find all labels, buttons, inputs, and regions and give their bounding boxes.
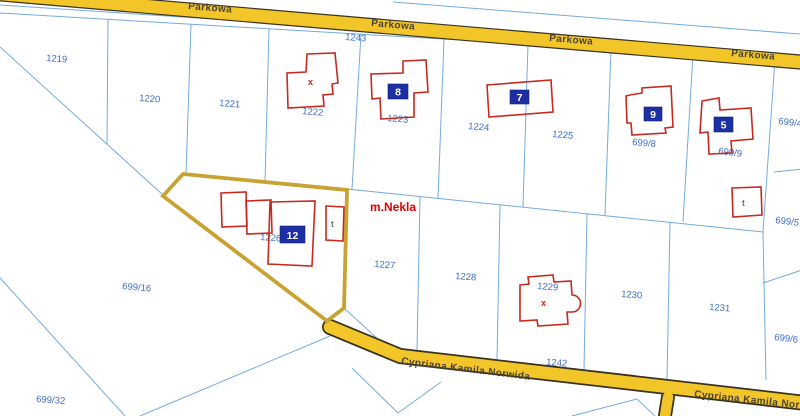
parcel-line [584, 214, 587, 370]
parcel-label-1231: 1231 [709, 302, 731, 314]
parcel-line [523, 44, 528, 207]
parcel-label-1220: 1220 [139, 93, 161, 105]
parcel-label-1227: 1227 [374, 259, 396, 271]
parcel-label-699-8: 699/8 [632, 137, 657, 150]
parcel-line [265, 29, 269, 182]
road-parcel-label-1243: 1243 [345, 32, 367, 44]
map-viewport[interactable]: 1242 Parkowa Parkowa Parkowa Parkowa Cyp… [0, 0, 800, 416]
parcel-label-1219: 1219 [46, 53, 68, 65]
parcel-label-1222: 1222 [302, 106, 324, 119]
buildings: x x t t [221, 53, 762, 326]
badge-12: 12 [287, 230, 299, 242]
parcel-line [497, 205, 500, 359]
building-cross-mark-1222: x [308, 77, 313, 87]
parcel-label-1224: 1224 [468, 121, 490, 134]
building-cross-mark-1229: x [541, 298, 546, 308]
badge-5: 5 [721, 120, 727, 132]
parcel-line [774, 169, 800, 172]
place-label-nekla: m.Nekla [370, 200, 416, 214]
parcel-label-699-4: 699/4 [778, 116, 800, 130]
parcel-label-1225: 1225 [552, 129, 574, 142]
road-parkowa [0, 0, 800, 70]
outbuilding-top-right [732, 187, 762, 217]
parcel-line [763, 270, 800, 283]
badge-9: 9 [650, 109, 656, 121]
parcel-label-1221: 1221 [219, 98, 241, 110]
parcel-line [438, 39, 444, 199]
building-parcel-1226-a [221, 192, 247, 227]
parcel-line [352, 368, 441, 413]
building-parcel-1226-b [246, 200, 272, 234]
parcel-label-699-16: 699/16 [122, 281, 152, 294]
parcel-line [572, 399, 655, 416]
outbuilding-t-mark-1226: t [331, 219, 334, 230]
outbuilding-parcel-1226 [326, 206, 344, 241]
road-branch [664, 397, 668, 416]
parcel-label-1228: 1228 [455, 271, 477, 283]
parcel-label-1230: 1230 [621, 289, 643, 301]
selected-parcel-outline [163, 174, 347, 321]
parcel-label-699-32: 699/32 [36, 394, 66, 407]
badge-7: 7 [517, 92, 523, 104]
outbuilding-t-mark-top: t [742, 198, 745, 209]
parcel-label-699-6: 699/6 [774, 332, 799, 346]
parcel-line [667, 222, 670, 380]
parcel-line [140, 336, 330, 416]
badge-8: 8 [395, 87, 401, 99]
parcel-line [763, 59, 775, 380]
parcel-line [605, 49, 611, 215]
parcel-line [417, 197, 420, 350]
parcel-line [186, 24, 191, 174]
cadastral-map-canvas[interactable]: 1242 Parkowa Parkowa Parkowa Parkowa Cyp… [0, 0, 800, 416]
parcel-label-699-5: 699/5 [775, 215, 800, 229]
road-labels: Parkowa Parkowa Parkowa Parkowa Cypriana… [188, 1, 800, 411]
parcel-line [352, 34, 361, 189]
parcel-line [107, 19, 108, 144]
parcel-label-1223: 1223 [387, 113, 409, 126]
parcel-line [683, 54, 693, 222]
parcel-line [0, 47, 163, 195]
parcel-label-1229: 1229 [537, 281, 559, 293]
